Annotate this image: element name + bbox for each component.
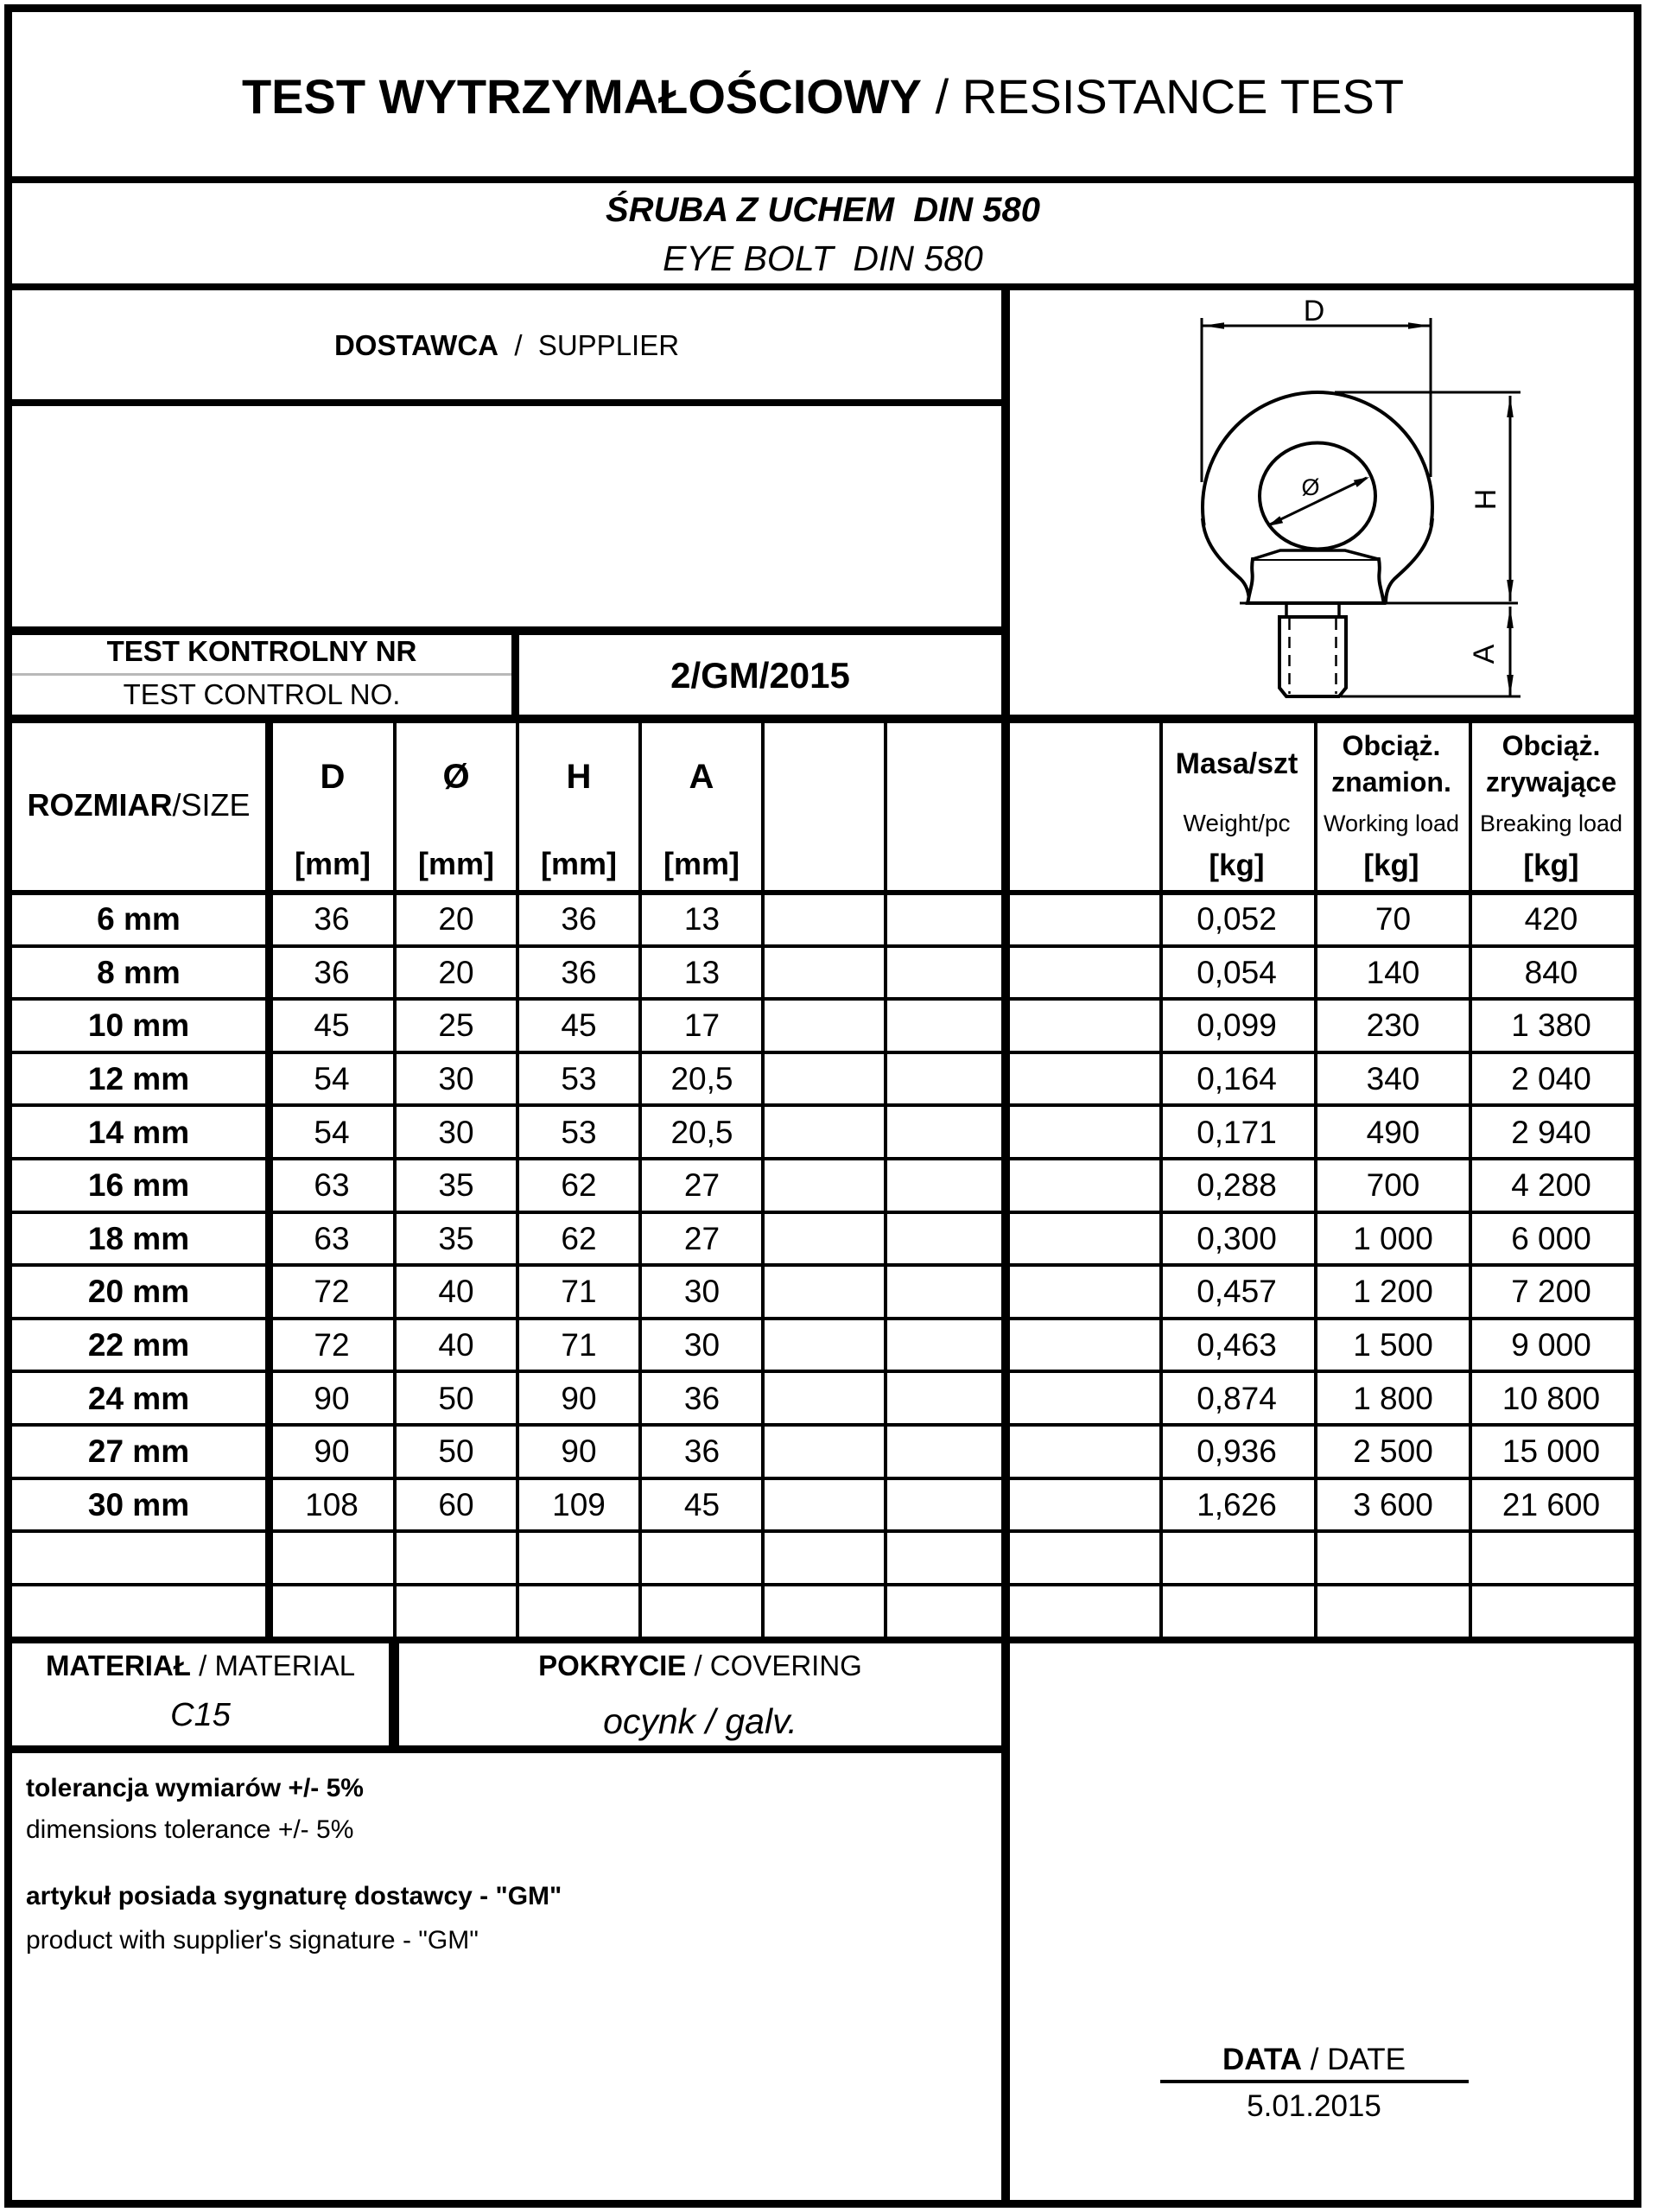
svg-text:Ø: Ø	[1301, 474, 1319, 500]
svg-text:A: A	[1468, 644, 1501, 664]
svg-text:D: D	[1304, 295, 1325, 327]
svg-text:H: H	[1470, 489, 1502, 511]
